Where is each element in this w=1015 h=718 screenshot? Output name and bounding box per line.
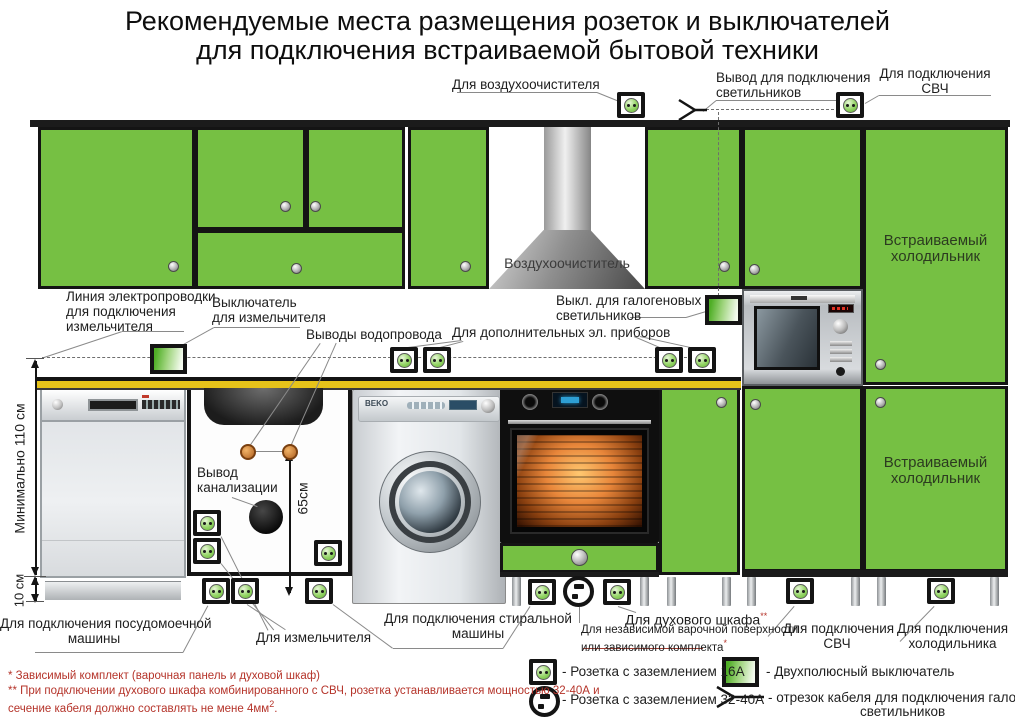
lights-output-line2: светильников xyxy=(716,85,870,100)
footnote-1: * Зависимый комплект (варочная панель и … xyxy=(8,670,320,683)
oven-knob xyxy=(522,394,538,410)
dishwasher-label-line2: машины xyxy=(0,631,188,646)
dishwasher-buttons xyxy=(142,400,180,409)
cabinet-handle-icon xyxy=(460,261,471,272)
footnote-2-text: сечение кабеля должно составлять не мене… xyxy=(8,703,269,715)
microwave-knob xyxy=(833,319,848,334)
socket-16a-icon xyxy=(603,579,631,605)
hob-label-mark: * xyxy=(723,638,727,648)
adjustable-leg xyxy=(990,577,999,606)
legend-cable-line2: светильников xyxy=(860,704,945,718)
socket-16a-icon xyxy=(528,579,556,605)
microwave-bottom-line2: СВЧ xyxy=(783,636,891,651)
adjustable-leg xyxy=(512,577,521,606)
sewer-label-line2: канализации xyxy=(197,480,278,495)
fridge-socket-label: Для подключения холодильника xyxy=(890,621,1015,651)
washer-label-line1: Для подключения стиральной xyxy=(363,611,593,626)
wiring-line3: измельчителя xyxy=(66,319,216,334)
fridge-label-line1: Встраиваемый xyxy=(865,455,1006,471)
microwave-socket-label: Для подключения СВЧ xyxy=(783,621,891,651)
wall-cabinet-door xyxy=(408,127,489,289)
socket-16a-icon xyxy=(305,578,333,604)
halogen-switch-line1: Выкл. для галогеновых xyxy=(556,293,701,308)
dishwasher-seam xyxy=(42,540,184,541)
washer-socket-label: Для подключения стиральной машины xyxy=(363,611,593,641)
wiring-line2: для подключения xyxy=(66,304,216,319)
oven-window xyxy=(512,430,647,532)
dishwasher-led xyxy=(142,395,149,398)
hob-label-line1: Для независимой варочной поверхности xyxy=(581,624,798,637)
fridge-label-line2: холодильник xyxy=(865,471,1006,487)
leader-line xyxy=(393,648,503,649)
halogen-switch-line2: светильников xyxy=(556,308,701,323)
cable-icon xyxy=(676,97,708,123)
lights-output-label: Вывод для подключения светильников xyxy=(716,70,870,100)
cabinet-handle-icon xyxy=(310,201,321,212)
cabinet-handle-icon xyxy=(749,264,760,275)
socket-16a-icon xyxy=(786,578,814,604)
leader-line xyxy=(35,652,183,653)
legend-socket3240-label: - Розетка с заземлением 32-40А xyxy=(562,692,764,707)
legend-socket-16a-icon xyxy=(529,659,557,685)
microwave-button xyxy=(830,357,852,362)
grinder-switch-label: Выключатель для измельчителя xyxy=(212,295,326,325)
dimension-line-110 xyxy=(35,361,37,575)
legend-socket16-label: - Розетка с заземлением 16А xyxy=(562,664,745,679)
wall-cabinet-door xyxy=(306,127,405,230)
oven-display-digits xyxy=(561,397,579,403)
microwave-display-digits xyxy=(832,307,848,310)
leader-line xyxy=(214,327,300,328)
lights-output-line1: Вывод для подключения xyxy=(716,70,870,85)
hood-label: Воздухоочиститель xyxy=(489,256,645,271)
dimension-tick xyxy=(26,358,44,359)
washer-knob xyxy=(481,399,495,413)
socket-16a-icon xyxy=(688,347,716,373)
dishwasher-socket-label: Для подключения посудомоечной машины xyxy=(0,616,188,646)
washer-display xyxy=(449,400,477,410)
cabinet-handle-icon xyxy=(719,261,730,272)
cabinet-handle-icon xyxy=(875,359,886,370)
washing-machine: BEKO xyxy=(352,388,506,604)
washer-buttons xyxy=(407,402,445,409)
adjustable-leg xyxy=(747,577,756,606)
additional-appliances-label: Для дополнительных эл. приборов xyxy=(452,325,670,340)
adjustable-leg xyxy=(877,577,886,606)
hood-duct xyxy=(544,127,591,231)
sink-basin xyxy=(204,388,323,425)
grinder-socket-label: Для измельчителя xyxy=(256,630,371,645)
sewer-label-line1: Вывод xyxy=(197,465,278,480)
fridge-socket-line1: Для подключения xyxy=(890,621,1015,636)
footnote-2-line2: сечение кабеля должно составлять не мене… xyxy=(8,698,277,715)
adjustable-leg xyxy=(640,577,649,606)
built-in-oven xyxy=(500,385,659,543)
dimension-arrow xyxy=(31,576,39,585)
hob-label-line2-wrap: или зависимого комплекта* xyxy=(581,637,798,654)
fridge-label-line1: Встраиваемый xyxy=(865,233,1006,249)
base-cabinet-door xyxy=(659,385,740,575)
page-title-line2: для подключения встраиваемой бытовой тех… xyxy=(0,35,1015,65)
dishwasher-label-line1: Для подключения посудомоечной xyxy=(0,616,188,631)
socket-16a-icon xyxy=(390,347,418,373)
dimension-label: 65см xyxy=(296,479,311,519)
water-valve-icon xyxy=(282,444,298,460)
fridge-socket-line2: холодильника xyxy=(890,636,1015,651)
microwave-round-button xyxy=(836,367,845,376)
dishwasher-knob xyxy=(52,399,63,410)
fridge-label-line2: холодильник xyxy=(865,249,1006,265)
leader-line xyxy=(44,331,122,358)
halogen-switch-label: Выкл. для галогеновых светильников xyxy=(556,293,701,323)
microwave-bottom-line1: Для подключения xyxy=(783,621,891,636)
socket-16a-icon xyxy=(617,92,645,118)
kitchen-wiring-diagram: Рекомендуемые места размещения розеток и… xyxy=(0,0,1015,718)
tall-cabinet-door xyxy=(742,127,863,289)
dimension-arrow xyxy=(31,567,39,576)
socket-16a-icon xyxy=(927,578,955,604)
water-valve-icon xyxy=(240,444,256,460)
socket-16a-icon xyxy=(193,538,221,564)
cabinet-top-rail xyxy=(30,120,1010,127)
cabinet-handle-icon xyxy=(875,397,886,408)
two-pole-switch-icon xyxy=(705,295,742,325)
hob-label-line2: или зависимого комплекта xyxy=(581,641,723,653)
fridge-label-bottom: Встраиваемый холодильник xyxy=(865,455,1006,487)
tall-cabinet-base-rail xyxy=(742,570,1008,577)
microwave-button xyxy=(830,341,852,346)
dimension-arrow xyxy=(285,587,293,596)
microwave-button xyxy=(830,349,852,354)
socket-16a-icon xyxy=(655,347,683,373)
dimension-arrow xyxy=(31,359,39,368)
socket-32-40a-icon xyxy=(563,576,594,607)
microwave-top-line1: Для подключения xyxy=(876,66,994,81)
dashed-line xyxy=(718,112,719,296)
dimension-label-110: Минимально 110 см xyxy=(13,394,28,544)
wiring-line-label: Линия электропроводки для подключения из… xyxy=(66,289,216,334)
socket-16a-icon xyxy=(202,578,230,604)
cabinet-handle-icon xyxy=(168,261,179,272)
cabinet-handle-icon xyxy=(716,397,727,408)
grinder-switch-line2: для измельчителя xyxy=(212,310,326,325)
two-pole-switch-icon xyxy=(150,344,187,374)
oven-knob xyxy=(592,394,608,410)
oven-display xyxy=(552,392,588,408)
dishwasher xyxy=(40,388,186,578)
footnote-2-end: . xyxy=(274,703,277,715)
dashed-line xyxy=(706,109,834,110)
legend-cable-line1: - отрезок кабеля для подключения галоген… xyxy=(768,690,1015,705)
microwave-top-label: Для подключения СВЧ xyxy=(876,66,994,96)
socket-16a-icon xyxy=(231,578,259,604)
cabinet-handle-icon xyxy=(291,263,302,274)
socket-16a-icon xyxy=(314,540,342,566)
water-outlets-label: Выводы водопровода xyxy=(306,327,442,342)
dishwasher-display-slot xyxy=(88,399,138,411)
microwave-display xyxy=(828,304,854,313)
washer-label-line2: машины xyxy=(363,626,593,641)
oven-label-mark: ** xyxy=(760,611,767,621)
adjustable-leg xyxy=(851,577,860,606)
hob-socket-label: Для независимой варочной поверхности или… xyxy=(581,624,798,654)
leader-line xyxy=(457,92,597,93)
wall-cabinet-flap-door xyxy=(195,230,405,289)
dimension-line-65 xyxy=(289,453,291,593)
legend-switch-label: - Двухполюсный выключатель xyxy=(766,664,954,679)
cabinet-handle-icon xyxy=(750,399,761,410)
dashed-line xyxy=(42,357,702,358)
microwave-window xyxy=(754,306,820,370)
sewer-label: Вывод канализации xyxy=(197,465,278,495)
oven-handle-bar xyxy=(508,420,651,424)
dimension-tick xyxy=(24,576,46,577)
page-title: Рекомендуемые места размещения розеток и… xyxy=(0,6,1015,36)
fridge-label-top: Встраиваемый холодильник xyxy=(865,233,1006,265)
adjustable-leg xyxy=(722,577,731,606)
leader-line xyxy=(597,92,618,101)
built-in-microwave xyxy=(742,289,863,386)
wiring-line1: Линия электропроводки xyxy=(66,289,216,304)
washer-door-glass xyxy=(399,471,461,533)
dimension-tick xyxy=(26,601,44,602)
countertop xyxy=(35,377,741,390)
dimension-label-10: 10 см xyxy=(12,569,27,613)
microwave-top-line2: СВЧ xyxy=(876,81,994,96)
wall-cabinet-door xyxy=(195,127,306,230)
cabinet-handle-icon xyxy=(280,201,291,212)
grinder-switch-line1: Выключатель xyxy=(212,295,326,310)
socket-16a-icon xyxy=(423,347,451,373)
oven-drawer-handle-icon xyxy=(571,549,588,566)
dishwasher-plinth xyxy=(45,581,181,600)
footnote-2-line1: ** При подключении духового шкафа комбин… xyxy=(8,685,600,698)
washer-brand: BEKO xyxy=(365,399,388,408)
microwave-vent xyxy=(791,296,807,300)
adjustable-leg xyxy=(667,577,676,606)
air-purifier-label: Для воздухоочистителя xyxy=(452,77,600,92)
socket-16a-icon xyxy=(193,510,221,536)
tall-cabinet-door xyxy=(742,386,863,572)
